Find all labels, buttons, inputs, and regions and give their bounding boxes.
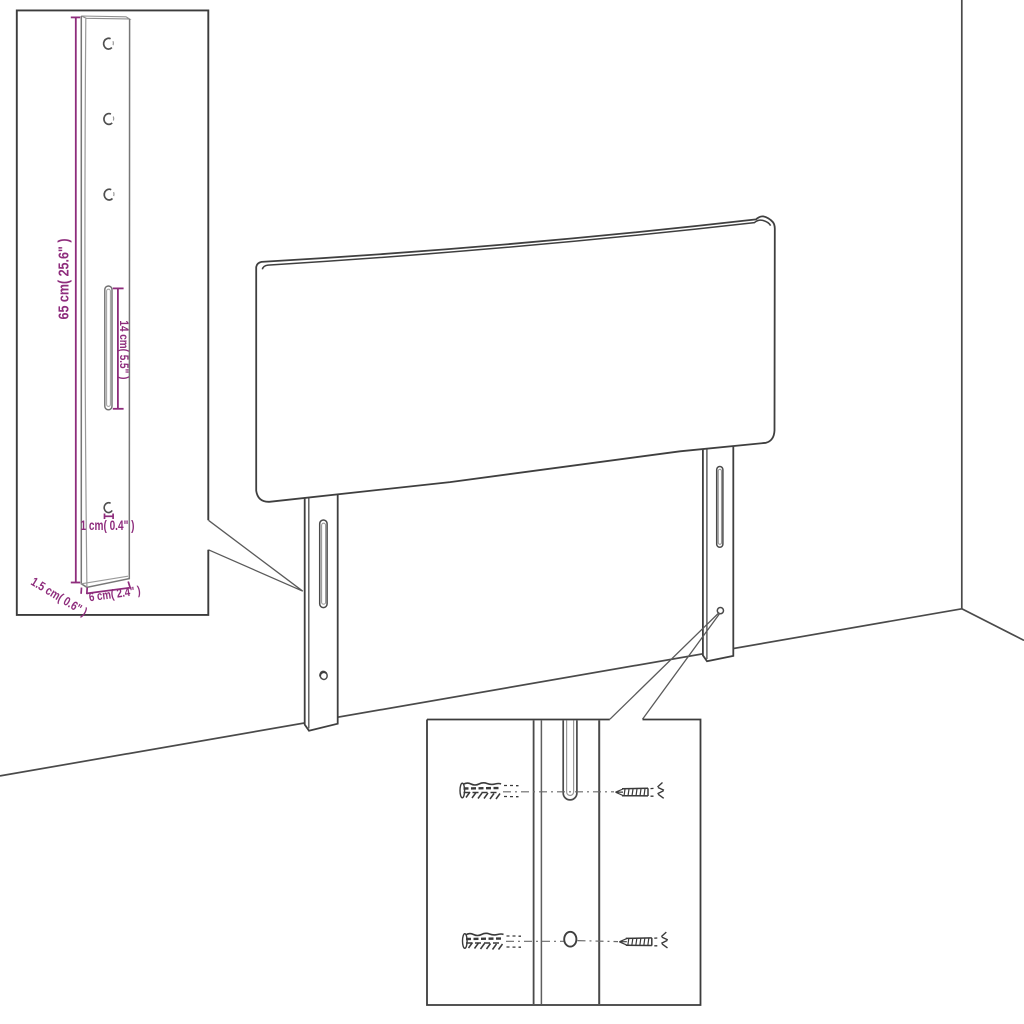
svg-text:1 cm( 0.4" ): 1 cm( 0.4" ) [81, 518, 135, 533]
svg-text:14 cm( 5.5" ): 14 cm( 5.5" ) [117, 320, 131, 379]
svg-text:65 cm( 25.6" ): 65 cm( 25.6" ) [55, 239, 72, 320]
